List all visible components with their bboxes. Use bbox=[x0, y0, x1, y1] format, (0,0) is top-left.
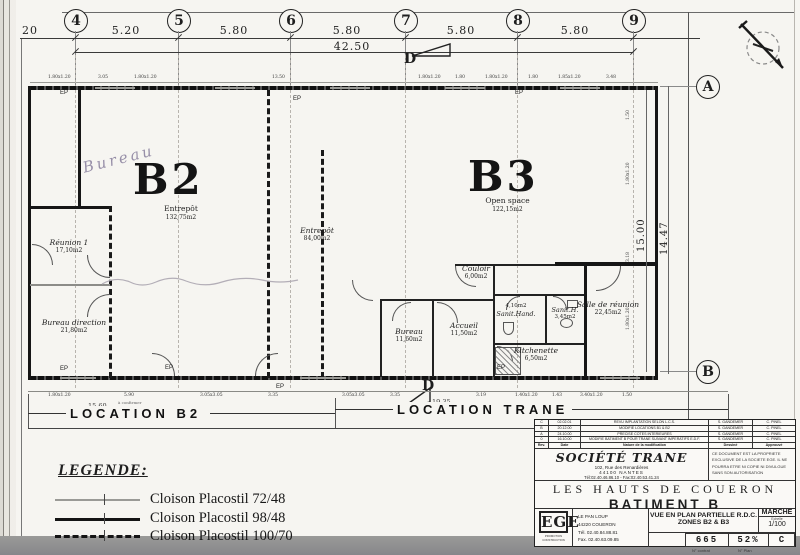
frame-left-line bbox=[21, 38, 22, 536]
legend-title: LEGENDE: bbox=[58, 462, 148, 480]
window bbox=[95, 87, 135, 89]
room-area: 22,45m2 bbox=[562, 309, 654, 317]
window-dim: 3.05x3.05 bbox=[200, 393, 223, 398]
partition-dashed bbox=[109, 206, 112, 378]
room-area: 21,80m2 bbox=[32, 327, 116, 335]
legend-item-label: Cloison Placostil 100/70 bbox=[150, 528, 293, 545]
door-arc bbox=[392, 302, 411, 321]
partition-solid bbox=[78, 90, 81, 207]
door-arc bbox=[255, 353, 278, 376]
window-dim: 1.50 bbox=[622, 393, 632, 398]
wall-left bbox=[28, 86, 31, 380]
side-window-dim: 1.80x1.20 bbox=[626, 307, 631, 330]
north-arrow-icon bbox=[733, 16, 795, 80]
window-dim: 3.48 bbox=[606, 75, 616, 80]
partition-solid bbox=[30, 206, 112, 209]
window bbox=[60, 377, 96, 379]
ep-label: EP bbox=[60, 90, 68, 96]
window-dim: 13.50 bbox=[272, 75, 285, 80]
grid-bubble-4: 4 bbox=[64, 9, 88, 33]
room-wall bbox=[432, 299, 434, 377]
company-phone: Tél:02.40.46.86.10 - Fax:02.40.53.41.24 bbox=[535, 475, 708, 480]
legend-item-label: Cloison Placostil 98/48 bbox=[150, 510, 285, 527]
plan-number: 52% bbox=[729, 533, 769, 547]
ep-label: EP bbox=[515, 90, 523, 96]
door-arc bbox=[87, 294, 110, 317]
grid-stem-A bbox=[660, 86, 696, 87]
room-name: Sanit.Hand. bbox=[488, 310, 544, 318]
room-area: 6,50m2 bbox=[500, 355, 572, 363]
window-dim: 1.80x1.20 bbox=[485, 75, 508, 80]
dim-side-1500: 15.00 bbox=[636, 218, 647, 252]
zone-b2-area: 132,75m2 bbox=[146, 214, 216, 222]
legend-symbol-tick bbox=[104, 494, 105, 505]
window-dim: 1.43 bbox=[552, 393, 562, 398]
grid-stem-B bbox=[660, 371, 696, 372]
dim-overall: 42.50 bbox=[330, 40, 374, 53]
side-window-dim: 1.80x1.20 bbox=[626, 162, 631, 185]
room-name: Kitchenette bbox=[500, 346, 572, 355]
window-dim: 3.05 bbox=[98, 75, 108, 80]
room-label-accueil: Accueil 11,50m2 bbox=[438, 321, 490, 338]
grid-bubble-5: 5 bbox=[167, 9, 191, 33]
grid-bubble-label: 4 bbox=[71, 13, 81, 29]
ep-label: EP bbox=[165, 365, 173, 371]
window-dim: 1.80x1.20 bbox=[48, 75, 71, 80]
firm-logo-box: EGE PROMOTION CONSTRUCTION bbox=[535, 509, 573, 547]
window-dim: 3.40x1.20 bbox=[580, 393, 603, 398]
window bbox=[445, 87, 485, 89]
view-box: VUE EN PLAN PARTIELLE R.D.C. ZONES B2 & … bbox=[649, 509, 759, 533]
floor-plan-sheet: 4 5 6 7 8 9 A B 20 5.20 5.80 5.80 5.80 5… bbox=[0, 0, 800, 555]
location-arrow-seg bbox=[210, 413, 335, 414]
room-area: 17,10m2 bbox=[38, 247, 100, 255]
room-name: Réunion 1 bbox=[38, 238, 100, 247]
grid-bubble-label: 7 bbox=[401, 13, 411, 29]
room-name: Bureau direction bbox=[32, 318, 116, 327]
grid-bubble-8: 8 bbox=[506, 9, 530, 33]
rev-index: C bbox=[769, 533, 795, 547]
ep-label: EP bbox=[293, 96, 301, 102]
company-name: SOCIÉTÉ TRANE bbox=[535, 450, 708, 465]
door-arc bbox=[352, 280, 373, 301]
room-name: Accueil bbox=[438, 321, 490, 330]
room-area: 4,10m2 bbox=[488, 303, 544, 310]
room-label-sanit-hand: 4,10m2 Sanit.Hand. bbox=[488, 303, 544, 318]
grid-bubble-label: 5 bbox=[174, 13, 184, 29]
side-window-dim: 1.50 bbox=[626, 110, 631, 120]
legend-symbol-solid bbox=[55, 518, 140, 521]
legend-item-label: Cloison Placostil 72/48 bbox=[150, 491, 285, 508]
window-dim: 1.40x1.20 bbox=[515, 393, 538, 398]
room-label-bureau-direction: Bureau direction 21,80m2 bbox=[32, 318, 116, 335]
view-line1: VUE EN PLAN PARTIELLE R.D.C. bbox=[649, 512, 758, 519]
dim-top: 5.80 bbox=[439, 24, 483, 37]
window-dim: 1.80x1.20 bbox=[418, 75, 441, 80]
window-dim: 5.90 bbox=[124, 393, 134, 398]
title-block: C 02.02.01 REVU IMPLANTATION SELON L.C.S… bbox=[534, 419, 796, 547]
partition-light bbox=[30, 284, 110, 286]
grid-bubble-label: 9 bbox=[629, 13, 639, 29]
dim-line-windows-top bbox=[30, 82, 658, 83]
plan-number-label: N° Plan bbox=[738, 548, 752, 553]
firm-address-box: LE PAN LOUP 44220 COUERON Tél. 02.40.84.… bbox=[573, 509, 649, 547]
firm-fax: Fax. 02.40.63.09.85 bbox=[578, 536, 648, 544]
window-dim: 1.80x1.20 bbox=[134, 75, 157, 80]
grid-bubble-label: 8 bbox=[513, 13, 523, 29]
room-wall bbox=[380, 299, 493, 301]
ep-label: EP bbox=[497, 365, 505, 371]
grid-bubble-6: 6 bbox=[279, 9, 303, 33]
firm-address1: LE PAN LOUP bbox=[578, 513, 648, 521]
legend-symbol-thin bbox=[55, 499, 140, 501]
side-window-dim: 3.18 bbox=[626, 252, 631, 262]
dim-b2-note: à confirmer bbox=[118, 400, 142, 405]
firm-logo-sub: PROMOTION CONSTRUCTION bbox=[535, 534, 572, 542]
section-flag-icon bbox=[410, 42, 456, 60]
dim-top: 5.80 bbox=[325, 24, 369, 37]
location-b2-label: LOCATION B2 bbox=[66, 406, 205, 421]
legend-symbol-tick bbox=[104, 513, 105, 524]
location-band-top-line bbox=[28, 391, 728, 392]
window bbox=[215, 87, 255, 89]
window-dim: 3.05x3.05 bbox=[342, 393, 365, 398]
firm-address2: 44220 COUERON bbox=[578, 521, 648, 529]
zone-b3-label: B3 bbox=[468, 152, 539, 201]
window bbox=[330, 87, 370, 89]
window-dim: 1.85x1.20 bbox=[558, 75, 581, 80]
ep-label: EP bbox=[276, 384, 284, 390]
location-band-midtick bbox=[335, 398, 336, 428]
room-wall bbox=[493, 294, 585, 296]
door-arc bbox=[596, 266, 621, 291]
window-dim: 3.19 bbox=[476, 393, 486, 398]
grid-bubble-label: B bbox=[702, 364, 714, 380]
room-name: Couloir bbox=[450, 264, 502, 273]
grid-axis-line bbox=[290, 55, 291, 388]
scan-left-edge bbox=[0, 0, 16, 555]
room-name: Salle de réunion bbox=[562, 300, 654, 309]
window-dim: 3.35 bbox=[268, 393, 278, 398]
project-box: LES HAUTS DE COUERON BATIMENT B bbox=[535, 481, 795, 509]
room-name: Entrepôt bbox=[288, 226, 346, 235]
partition-dashed bbox=[267, 90, 270, 378]
number-strip: 665 52% C bbox=[649, 533, 795, 547]
wall-right bbox=[655, 86, 658, 380]
dim-line-top bbox=[20, 38, 700, 39]
frame-right-line bbox=[688, 12, 689, 419]
room-label-couloir: Couloir 6,00m2 bbox=[450, 264, 502, 281]
grid-bubble-7: 7 bbox=[394, 9, 418, 33]
grid-bubble-label: 6 bbox=[286, 13, 296, 29]
window-dim: 1.80x1.20 bbox=[48, 393, 71, 398]
room-area: 6,00m2 bbox=[450, 273, 502, 281]
window bbox=[300, 377, 346, 379]
dim-top: 5.20 bbox=[104, 24, 148, 37]
grid-axis-line bbox=[75, 55, 76, 388]
partition-dashed bbox=[321, 150, 324, 378]
room-wall bbox=[380, 299, 382, 377]
window-dim: 3.35 bbox=[390, 393, 400, 398]
location-arrow-seg bbox=[28, 413, 66, 414]
contract-number-label: N° contrat bbox=[692, 548, 710, 553]
room-label-salle-reunion: Salle de réunion 22,45m2 bbox=[562, 300, 654, 317]
dim-side-1447: 14.47 bbox=[659, 221, 670, 255]
zone-b3-area: 122,15m2 bbox=[470, 206, 545, 214]
marche-label: MARCHE bbox=[759, 509, 795, 517]
room-area: 84,00m2 bbox=[288, 235, 346, 243]
location-arrow-seg bbox=[335, 409, 393, 410]
room-area: 11,50m2 bbox=[438, 330, 490, 338]
legend-symbol-tick bbox=[104, 530, 105, 541]
toilet-fixture bbox=[503, 322, 514, 335]
zone-b2-sub: Entrepôt 132,75m2 bbox=[146, 204, 216, 222]
room-label-entrepot: Entrepôt 84,00m2 bbox=[288, 226, 346, 243]
window-dim: 1.80 bbox=[528, 75, 538, 80]
dim-top: 20 bbox=[8, 24, 52, 37]
grid-axis-line bbox=[517, 55, 518, 388]
zone-b2-label: B2 bbox=[133, 155, 204, 204]
disclaimer-box: CE DOCUMENT EST LA PROPRIETE EXCLUSIVE D… bbox=[709, 449, 795, 481]
contract-number: 665 bbox=[685, 533, 729, 547]
company-box: SOCIÉTÉ TRANE 102, Rue des Renardières 4… bbox=[535, 449, 709, 481]
firm-phone: Tél. 02.40.84.88.81 bbox=[578, 529, 648, 537]
room-label-kitchenette: Kitchenette 6,50m2 bbox=[500, 346, 572, 363]
room-area: 11,60m2 bbox=[386, 336, 432, 344]
window bbox=[600, 377, 640, 379]
room-name: Bureau bbox=[386, 327, 432, 336]
zone-b2-type: Entrepôt bbox=[146, 204, 216, 214]
grid-bubble-label: A bbox=[703, 79, 714, 95]
legend-symbol-dashed bbox=[55, 535, 140, 538]
ep-label: EP bbox=[60, 366, 68, 372]
zone-b3-sub: Open space 122,15m2 bbox=[470, 196, 545, 214]
door-arc bbox=[437, 302, 458, 323]
location-band-endtick bbox=[28, 394, 29, 428]
window-dim: 1.80 bbox=[455, 75, 465, 80]
grid-bubble-9: 9 bbox=[622, 9, 646, 33]
grid-axis-line bbox=[633, 55, 634, 388]
dim-top: 5.80 bbox=[212, 24, 256, 37]
view-line2: ZONES B2 & B3 bbox=[649, 519, 758, 526]
marche-box: MARCHE Echelle 1/100 bbox=[759, 509, 795, 533]
project-title: LES HAUTS DE COUERON bbox=[535, 482, 795, 497]
firm-logo: EGE bbox=[539, 511, 568, 533]
dim-top: 5.80 bbox=[553, 24, 597, 37]
room-wall bbox=[493, 343, 585, 345]
revision-table: C 02.02.01 REVU IMPLANTATION SELON L.C.S… bbox=[535, 420, 795, 449]
room-label-reunion1: Réunion 1 17,10m2 bbox=[38, 238, 100, 255]
room-label-bureau: Bureau 11,60m2 bbox=[386, 327, 432, 344]
location-trane-label: LOCATION TRANE bbox=[393, 402, 572, 417]
grid-bubble-B: B bbox=[696, 360, 720, 384]
zone-b3-type: Open space bbox=[470, 196, 545, 206]
window bbox=[560, 87, 600, 89]
pencil-squiggle bbox=[100, 272, 300, 290]
section-letter: D bbox=[404, 51, 416, 67]
grid-bubble-A: A bbox=[696, 75, 720, 99]
scale-value: 1/100 bbox=[759, 521, 795, 528]
